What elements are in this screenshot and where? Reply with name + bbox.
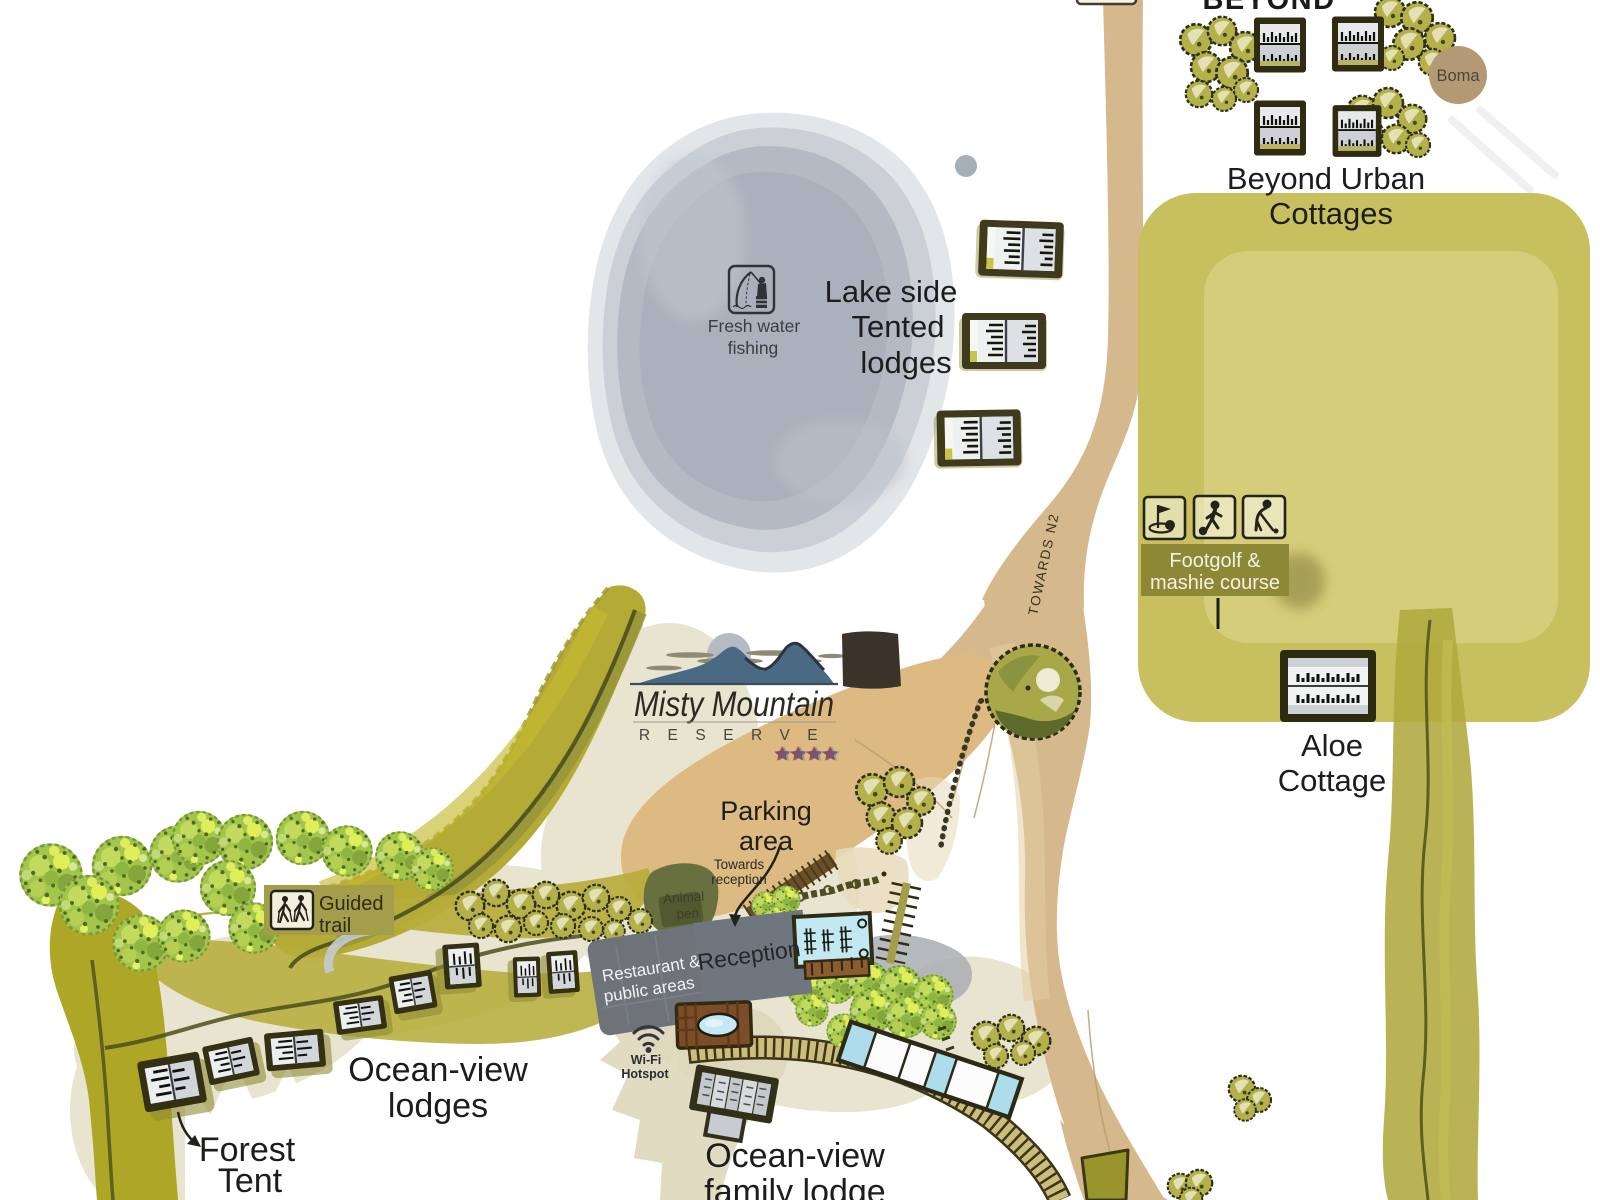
svg-text:lodges: lodges	[860, 345, 951, 380]
svg-text:fishing: fishing	[728, 338, 779, 358]
svg-text:Hotspot: Hotspot	[621, 1067, 669, 1081]
svg-text:Beyond Urban: Beyond Urban	[1227, 161, 1425, 196]
svg-text:Misty Mountain: Misty Mountain	[634, 685, 834, 724]
svg-text:mashie course: mashie course	[1150, 572, 1280, 594]
svg-text:family lodge: family lodge	[704, 1173, 885, 1200]
svg-text:Guided: Guided	[319, 893, 384, 915]
svg-text:Boma: Boma	[1436, 67, 1480, 85]
svg-text:trail: trail	[319, 915, 351, 937]
svg-text:Parking: Parking	[720, 796, 812, 826]
svg-text:RESERVE: RESERVE	[639, 727, 835, 744]
svg-text:Ocean-view: Ocean-view	[348, 1051, 528, 1089]
svg-text:Wi-Fi: Wi-Fi	[631, 1053, 661, 1067]
svg-text:BEYOND: BEYOND	[1202, 0, 1335, 16]
svg-text:Footgolf &: Footgolf &	[1169, 550, 1261, 572]
svg-text:area: area	[739, 826, 794, 856]
svg-text:Tented: Tented	[851, 309, 944, 344]
svg-text:Cottage: Cottage	[1278, 763, 1387, 798]
svg-text:Lake side: Lake side	[825, 274, 958, 309]
svg-text:Ocean-view: Ocean-view	[705, 1137, 885, 1175]
svg-text:Aloe: Aloe	[1301, 728, 1363, 763]
svg-text:Towards: Towards	[714, 857, 765, 872]
svg-text:pen: pen	[676, 905, 700, 922]
svg-text:Animal: Animal	[663, 889, 705, 907]
svg-text:Tent: Tent	[218, 1162, 283, 1200]
svg-text:lodges: lodges	[388, 1087, 488, 1125]
svg-text:Cottages: Cottages	[1269, 196, 1393, 231]
svg-text:Fresh water: Fresh water	[708, 316, 801, 336]
